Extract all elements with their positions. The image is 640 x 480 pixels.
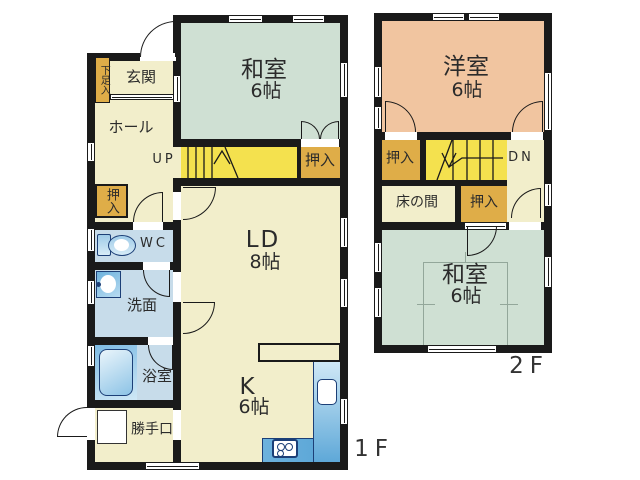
- label-hall: ホール: [108, 120, 153, 136]
- stove-icon: [272, 439, 298, 458]
- window-yoshitsu-left-1: [374, 66, 382, 98]
- label-ld: LD: [246, 228, 281, 252]
- kitchen-unit-vertical: [313, 362, 340, 462]
- label-washitsu-2f: 和室: [442, 263, 488, 287]
- window-yoshitsu-top-1: [432, 13, 465, 21]
- katteguchi-door-arc: [57, 407, 87, 437]
- label-washitsu-1f-size: 6帖: [250, 82, 281, 102]
- window-kitchen-right: [340, 398, 348, 425]
- katteguchi-step: [97, 410, 127, 444]
- wall-2f-tokonoma-divider: [455, 186, 461, 222]
- label-oshiire-hall: 押入: [104, 188, 118, 214]
- window-washitsu1f-top-1: [228, 15, 263, 23]
- wall-1f-bottom: [87, 462, 348, 470]
- window-washitsu2f-left-1: [374, 242, 382, 273]
- label-katteguchi: 勝手口: [131, 423, 173, 438]
- gap-nook-wc-door: [133, 222, 163, 230]
- window-washitsu2f-right: [544, 256, 552, 288]
- label-oshiire-2f-left: 押入: [386, 152, 414, 167]
- gap-ld-senmen-door: [173, 272, 181, 302]
- window-yoshitsu-right: [544, 72, 552, 131]
- label-wc: WC: [140, 237, 168, 251]
- bathtub-icon: [99, 349, 133, 396]
- wall-bath-katteguchi: [87, 400, 181, 408]
- label-senmen: 洗面: [127, 298, 157, 314]
- window-yoshitsu-top-2: [468, 13, 500, 21]
- wall-2f-under-stairs: [382, 180, 507, 186]
- label-yoshitsu: 洋室: [443, 55, 489, 79]
- window-washitsu2f-bottom: [427, 345, 497, 353]
- label-kitchen-size: 6帖: [238, 398, 269, 418]
- gap-senmen-door: [143, 262, 170, 270]
- stairs-2f-treads-arrow: [426, 140, 507, 180]
- label-ld-size: 8帖: [249, 253, 280, 273]
- window-landing-right: [544, 183, 552, 207]
- kitchen-sink-icon: [317, 379, 337, 405]
- toilet-bowl-icon: [108, 235, 136, 256]
- window-yoshitsu-left-2: [374, 106, 382, 130]
- gap-hall-ld-door: [173, 192, 181, 220]
- window-ld-right-2: [340, 278, 348, 308]
- gap-yoshitsu-door-left: [385, 132, 417, 140]
- window-bath-left: [87, 345, 95, 367]
- label-bath: 浴室: [142, 369, 172, 385]
- sliding-door-genkan-washitsu: [173, 75, 181, 103]
- gap-katteguchi-exterior-door: [87, 408, 95, 440]
- gap-washitsu-closet-doors: [301, 139, 339, 147]
- label-floor2: 2F: [509, 354, 549, 378]
- floor-plan-canvas: 和室 6帖 玄関 下足入 ホール UP 押入 押入 WC 洗面 浴室 勝手口 L…: [0, 0, 640, 480]
- window-1f-bottom: [145, 462, 200, 470]
- wall-stairs-closet-divider: [297, 147, 301, 178]
- label-oshiire-stairs-1f: 押入: [305, 153, 335, 169]
- window-senmen-left: [87, 280, 95, 305]
- label-up: UP: [152, 153, 175, 167]
- wall-1f-row2: [173, 178, 348, 186]
- label-floor1: 1F: [354, 437, 394, 461]
- label-washitsu-2f-size: 6帖: [450, 287, 481, 307]
- label-dn: DN: [508, 151, 534, 165]
- label-getabako: 下足入: [98, 65, 109, 95]
- window-washitsu1f-right: [340, 62, 348, 98]
- counter-ld-k: [258, 343, 341, 362]
- gap-yoshitsu-door-right: [511, 132, 543, 140]
- label-yoshitsu-size: 6帖: [451, 81, 482, 101]
- label-oshiire-2f-mid: 押入: [470, 196, 498, 211]
- gap-landing-washitsu-door: [509, 222, 541, 230]
- gap-kitchen-katteguchi-door: [173, 410, 181, 440]
- stairs-1f-treads-arrow: [181, 147, 297, 178]
- label-washitsu-1f: 和室: [241, 58, 287, 82]
- gap-bath-door: [148, 337, 173, 345]
- washbasin-icon: [96, 271, 121, 298]
- tatami-tick-top: [465, 252, 466, 262]
- label-genkan: 玄関: [126, 70, 156, 86]
- window-wc-left: [87, 228, 95, 252]
- tatami-tick-left: [417, 304, 435, 305]
- window-washitsu1f-top-2: [292, 15, 325, 23]
- entrance-door-arc: [140, 21, 176, 57]
- window-washitsu2f-left-2: [374, 287, 382, 318]
- threshold-genkan: [110, 94, 174, 100]
- window-ld-right-1: [340, 217, 348, 248]
- label-tokonoma: 床の間: [396, 196, 438, 211]
- tatami-tick-right: [500, 304, 518, 305]
- window-hall-left: [87, 142, 95, 162]
